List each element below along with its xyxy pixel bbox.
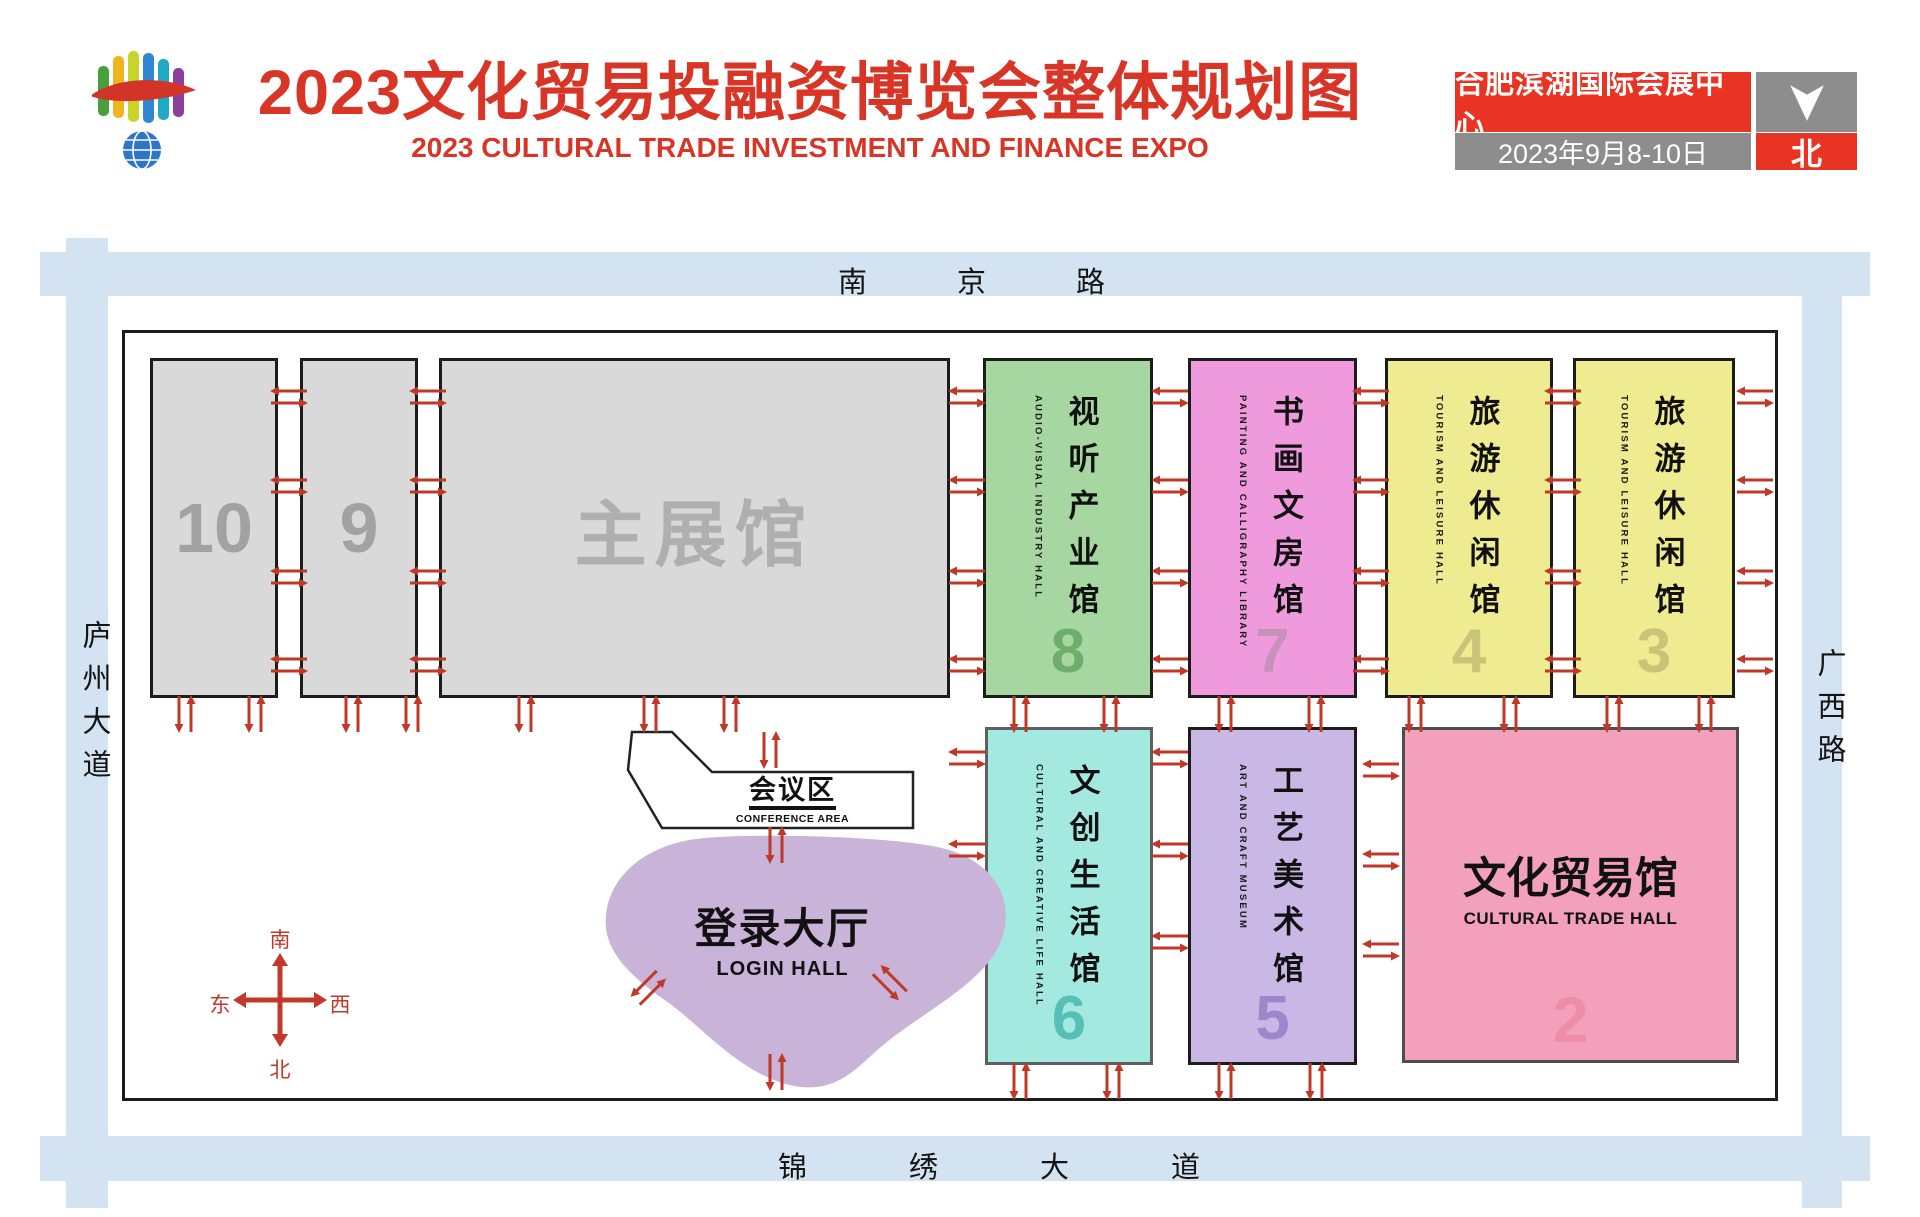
compass-south-label: 南	[265, 924, 295, 954]
conference-area-label-en: CONFERENCE AREA	[695, 813, 890, 825]
entrance-arrow	[269, 565, 309, 594]
entrance-arrow	[1351, 385, 1391, 414]
hall-4-tourism-leisure: TOURISM AND LEISURE HALL 旅游休闲馆 4	[1385, 358, 1553, 698]
entrance-arrow	[947, 565, 987, 594]
entrance-arrow	[1498, 694, 1522, 739]
compass: 南 北 东 西	[205, 922, 355, 1080]
hall-8-audio-visual: AUDIO-VISUAL INDUSTRY HALL 视听产业馆 8	[983, 358, 1153, 698]
entrance-arrow	[1543, 653, 1583, 682]
entrance-arrow	[1361, 938, 1401, 967]
road-guangxi-label: 广西路	[1808, 648, 1850, 777]
compass-north-label: 北	[265, 1054, 295, 1084]
entrance-arrow	[1601, 694, 1625, 739]
hall-3-tourism-leisure: TOURISM AND LEISURE HALL 旅游休闲馆 3	[1573, 358, 1735, 698]
page-subtitle: 2023 CULTURAL TRADE INVESTMENT AND FINAN…	[230, 134, 1390, 162]
hall-10: 10	[150, 358, 278, 698]
hall-2-number: 2	[1405, 988, 1736, 1052]
entrance-arrow	[1351, 565, 1391, 594]
entrance-arrow	[1735, 565, 1775, 594]
hall-6-name-cn: 文创生活馆	[1060, 764, 1105, 1007]
hall-7-painting-calligraphy: PAINTING AND CALLIGRAPHY LIBRARY 书画文房馆 7	[1188, 358, 1357, 698]
entrance-arrow	[947, 385, 987, 414]
expo-logo-icon	[92, 50, 196, 172]
conference-area-label-cn: 会议区	[749, 775, 836, 810]
entrance-arrow	[764, 1052, 788, 1097]
entrance-arrow	[513, 694, 537, 739]
entrance-arrow	[1150, 653, 1190, 682]
entrance-arrow	[1403, 694, 1427, 739]
hall-8-name-cn: 视听产业馆	[1059, 395, 1104, 630]
entrance-arrow	[718, 694, 742, 739]
entrance-arrow	[1735, 385, 1775, 414]
entrance-arrow	[1543, 474, 1583, 503]
hall-5-number: 5	[1191, 988, 1354, 1050]
entrance-arrow	[408, 385, 448, 414]
entrance-arrow	[1351, 653, 1391, 682]
entrance-arrow	[1361, 848, 1401, 877]
entrance-arrow	[947, 474, 987, 503]
login-hall: 登录大厅 LOGIN HALL	[655, 908, 910, 981]
entrance-arrow	[269, 385, 309, 414]
entrance-arrow	[400, 694, 424, 739]
page-title: 2023文化贸易投融资博览会整体规划图	[230, 62, 1390, 125]
entrance-arrow	[1735, 474, 1775, 503]
entrance-arrow	[1008, 694, 1032, 739]
entrance-arrow	[764, 825, 788, 870]
entrance-arrow	[1150, 474, 1190, 503]
entrance-arrow	[947, 838, 987, 867]
compass-west-label: 西	[325, 989, 355, 1019]
date-badge: 2023年9月8-10日	[1455, 133, 1751, 170]
hall-3-name-cn: 旅游休闲馆	[1645, 395, 1690, 630]
entrance-arrow	[269, 653, 309, 682]
entrance-arrow	[1150, 746, 1190, 775]
north-badge: 北	[1756, 133, 1857, 170]
hall-5-name-en: ART AND CRAFT MUSEUM	[1237, 764, 1248, 999]
entrance-arrow	[758, 730, 782, 775]
entrance-arrow	[1351, 474, 1391, 503]
entrance-arrow	[1361, 758, 1401, 787]
entrance-arrow	[1304, 1061, 1328, 1106]
entrance-arrow	[243, 694, 267, 739]
main-exhibition-hall: 主展馆	[439, 358, 950, 698]
entrance-arrow	[1098, 694, 1122, 739]
entrance-arrow	[1150, 385, 1190, 414]
hall-2-name-en: CULTURAL TRADE HALL	[1464, 909, 1678, 929]
venue-badge: 合肥滨湖国际会展中心	[1455, 72, 1751, 132]
entrance-arrow	[1213, 1061, 1237, 1106]
hall-4-name-en: TOURISM AND LEISURE HALL	[1434, 395, 1445, 630]
entrance-arrow	[638, 694, 662, 739]
hall-3-number: 3	[1576, 621, 1732, 683]
entrance-arrow	[1150, 930, 1190, 959]
hall-7-number: 7	[1191, 621, 1354, 683]
hall-8-number: 8	[986, 621, 1150, 683]
entrance-arrow	[340, 694, 364, 739]
hall-3-name-en: TOURISM AND LEISURE HALL	[1619, 395, 1630, 630]
road-jinxiu-label: 锦绣大道	[778, 1144, 1302, 1186]
hall-2-name-cn: 文化贸易馆	[1463, 858, 1678, 901]
hall-9-number: 9	[340, 488, 379, 568]
hall-5-art-craft: ART AND CRAFT MUSEUM 工艺美术馆 5	[1188, 727, 1357, 1065]
hall-8-name-en: AUDIO-VISUAL INDUSTRY HALL	[1033, 395, 1044, 630]
entrance-arrow	[1543, 565, 1583, 594]
login-hall-label-cn: 登录大厅	[655, 908, 910, 950]
entrance-arrow	[408, 653, 448, 682]
entrance-arrow	[408, 565, 448, 594]
entrance-arrow	[173, 694, 197, 739]
hall-7-name-cn: 书画文房馆	[1263, 395, 1308, 649]
entrance-arrow	[269, 474, 309, 503]
hall-4-name-cn: 旅游休闲馆	[1460, 395, 1505, 630]
entrance-arrow	[1008, 1061, 1032, 1106]
hall-10-number: 10	[175, 488, 253, 568]
hall-5-name-cn: 工艺美术馆	[1263, 764, 1308, 999]
entrance-arrow	[947, 653, 987, 682]
hall-6-name-en: CULTURAL AND CREATIVE LIFE HALL	[1034, 764, 1045, 1007]
entrance-arrow	[1303, 694, 1327, 739]
entrance-arrow	[1150, 565, 1190, 594]
entrance-arrow	[1150, 838, 1190, 867]
hall-9: 9	[300, 358, 418, 698]
compass-cross-icon	[232, 952, 328, 1048]
entrance-arrow	[408, 474, 448, 503]
compass-east-label: 东	[205, 989, 235, 1019]
entrance-arrow	[1213, 694, 1237, 739]
expo-plan-map: 2023文化贸易投融资博览会整体规划图 2023 CULTURAL TRADE …	[0, 0, 1920, 1217]
hall-4-number: 4	[1388, 621, 1550, 683]
entrance-arrow	[947, 746, 987, 775]
entrance-arrow	[1735, 653, 1775, 682]
hall-2-cultural-trade: 文化贸易馆 CULTURAL TRADE HALL 2	[1402, 727, 1739, 1063]
road-luzhou-label: 庐州大道	[73, 620, 115, 792]
entrance-arrow	[1101, 1061, 1125, 1106]
entrance-arrow	[1543, 385, 1583, 414]
entrance-arrow	[1693, 694, 1717, 739]
main-exhibition-hall-label: 主展馆	[574, 476, 814, 581]
north-arrow-icon	[1756, 72, 1857, 132]
conference-area: 会议区 CONFERENCE AREA	[695, 775, 890, 825]
road-nanjing-label: 南京路	[838, 259, 1195, 301]
hall-7-name-en: PAINTING AND CALLIGRAPHY LIBRARY	[1237, 395, 1248, 649]
event-info-box: 合肥滨湖国际会展中心 2023年9月8-10日 北	[1455, 72, 1857, 170]
